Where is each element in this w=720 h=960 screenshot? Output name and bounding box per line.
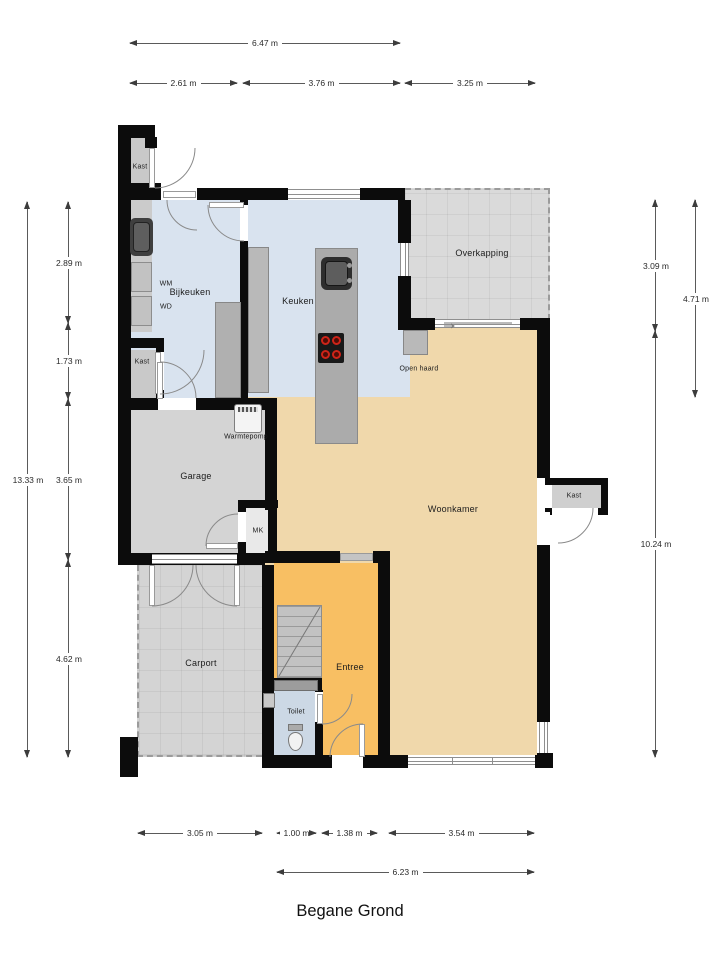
- dim-top-2: 3.76 m: [243, 83, 400, 84]
- dim-bottom-2: 1.00 m: [277, 833, 316, 834]
- wall: [145, 137, 157, 148]
- toilet-sink: [263, 693, 275, 708]
- door-leaf: [359, 724, 365, 757]
- door-leaf: [157, 362, 163, 399]
- dim-top-overall: 6.47 m: [130, 43, 400, 44]
- burner: [332, 350, 341, 359]
- wall: [262, 565, 274, 755]
- open-haard-unit: [403, 330, 428, 355]
- wall: [238, 500, 278, 508]
- room-label-wm: WM: [160, 281, 173, 288]
- room-label-open-haard: Open haard: [400, 366, 439, 373]
- dim-bottom-overall: 6.23 m: [277, 872, 534, 873]
- wall: [363, 755, 408, 768]
- threshold: [340, 553, 373, 561]
- door-leaf: [163, 191, 196, 198]
- dim-top-3: 3.25 m: [405, 83, 535, 84]
- dim-bottom-3: 1.38 m: [322, 833, 377, 834]
- wall: [265, 398, 277, 510]
- entree-cabinet: [274, 680, 318, 691]
- door-leaf: [206, 543, 238, 549]
- room-label-kast-right: Kast: [567, 493, 582, 500]
- room-label-keuken: Keuken: [282, 296, 314, 306]
- dim-right-3: 10.24 m: [655, 331, 656, 757]
- room-label-mk: MK: [253, 528, 264, 535]
- room-label-woonkamer: Woonkamer: [428, 504, 478, 514]
- window-tick: [452, 757, 453, 765]
- window-right: [539, 722, 548, 753]
- warmtepomp-grille: [238, 407, 258, 412]
- wall: [268, 508, 277, 555]
- counter-keuken: [248, 247, 269, 393]
- wall: [535, 755, 553, 768]
- room-label-kast-topleft: Kast: [133, 164, 148, 171]
- dryer-wd: [131, 296, 152, 326]
- wall: [128, 183, 161, 200]
- sink-basin-bijkeuken: [133, 222, 150, 252]
- carport-post: [120, 737, 138, 777]
- dim-right-1: 3.09 m: [655, 200, 656, 331]
- wall: [405, 318, 435, 330]
- page-title: Begane Grond: [296, 902, 403, 921]
- wall: [398, 200, 411, 243]
- room-label-warmtepomp: Warmtepomp: [224, 434, 268, 441]
- room-label-entree: Entree: [336, 662, 364, 672]
- window-tick: [492, 757, 493, 765]
- dim-left-2: 1.73 m: [68, 323, 69, 399]
- sliding-door-overkapping: [435, 319, 520, 328]
- room-label-overkapping: Overkapping: [455, 248, 508, 258]
- room-label-garage: Garage: [180, 471, 211, 481]
- dim-left-4: 4.62 m: [68, 560, 69, 757]
- dim-left-1: 2.89 m: [68, 202, 69, 323]
- wall-kast-right-top: [545, 478, 608, 485]
- door-gap: [240, 205, 248, 241]
- island-faucet: [347, 278, 352, 283]
- room-label-toilet: Toilet: [287, 709, 305, 716]
- wall: [537, 330, 550, 478]
- door-leaf: [234, 565, 240, 606]
- wall: [360, 188, 405, 200]
- burner: [321, 350, 330, 359]
- door-gap: [238, 512, 246, 542]
- door-leaf: [149, 565, 155, 606]
- door-gap-kast-right: [552, 508, 598, 515]
- window-keuken-east: [400, 243, 409, 276]
- wall: [537, 545, 550, 722]
- window-top: [288, 189, 360, 199]
- window-bottom: [408, 757, 535, 765]
- door-leaf: [149, 148, 155, 188]
- door-gap: [158, 398, 196, 410]
- door-gap: [537, 512, 550, 545]
- stairs: [277, 605, 322, 678]
- room-label-carport: Carport: [185, 658, 216, 668]
- wall: [262, 755, 332, 768]
- dim-bottom-1: 3.05 m: [138, 833, 262, 834]
- door-leaf: [317, 694, 323, 724]
- dim-left-3: 3.65 m: [68, 399, 69, 560]
- wall: [265, 551, 340, 563]
- dim-bottom-4: 3.54 m: [389, 833, 534, 834]
- cooktop: [318, 333, 344, 363]
- floorplan-canvas: Kast Bijkeuken WM WD Kast Keuken Overkap…: [0, 0, 720, 960]
- room-label-wd: WD: [160, 304, 172, 311]
- garage-door: [152, 554, 237, 564]
- dim-top-1: 2.61 m: [130, 83, 237, 84]
- island-faucet: [347, 263, 352, 268]
- washer-wm: [131, 262, 152, 292]
- counter-bijkeuken: [215, 302, 241, 398]
- room-label-bijkeuken: Bijkeuken: [170, 287, 211, 297]
- wall: [378, 551, 390, 755]
- burner: [321, 336, 330, 345]
- wall: [197, 188, 288, 200]
- room-label-kast-left: Kast: [135, 359, 150, 366]
- toilet-tank: [288, 724, 303, 731]
- floor-kast-left: [131, 350, 156, 398]
- burner: [332, 336, 341, 345]
- island-sink-basin: [325, 261, 348, 286]
- door-leaf: [209, 202, 244, 208]
- door-arc: [155, 148, 195, 188]
- dim-right-2: 4.71 m: [695, 200, 696, 397]
- dim-left-overall: 13.33 m: [27, 202, 28, 757]
- wall: [520, 318, 550, 330]
